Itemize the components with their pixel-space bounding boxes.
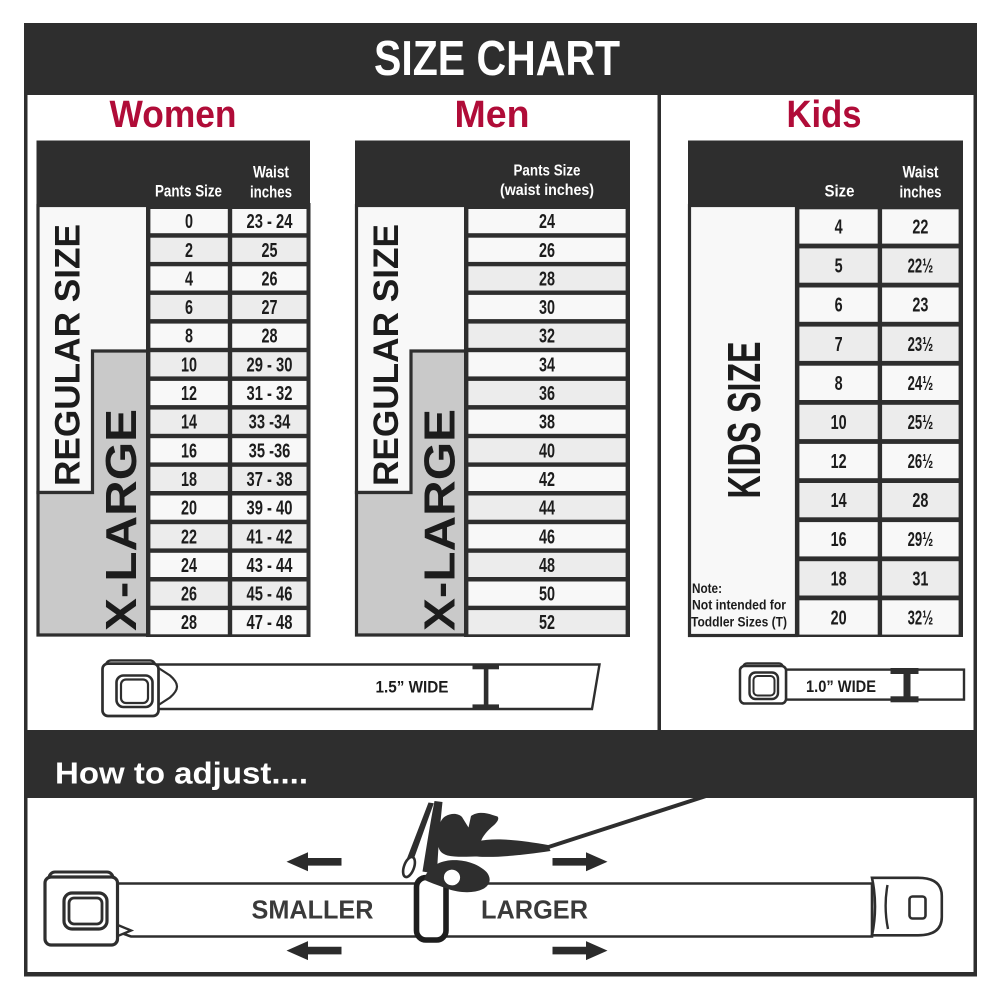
svg-text:REGULAR SIZE: REGULAR SIZE: [49, 224, 88, 486]
svg-text:28: 28: [181, 612, 197, 634]
svg-text:Kids: Kids: [787, 94, 862, 136]
svg-text:1.0” WIDE: 1.0” WIDE: [806, 678, 876, 696]
svg-text:10: 10: [181, 354, 197, 376]
svg-text:28: 28: [539, 268, 555, 290]
svg-text:23 - 24: 23 - 24: [247, 211, 294, 233]
svg-text:Pants Size: Pants Size: [155, 183, 222, 201]
svg-text:8: 8: [835, 373, 843, 395]
svg-text:26: 26: [181, 584, 197, 606]
svg-text:Waist: Waist: [903, 164, 939, 182]
svg-text:25½: 25½: [908, 412, 934, 434]
svg-text:SMALLER: SMALLER: [252, 895, 374, 925]
svg-text:KIDS SIZE: KIDS SIZE: [718, 342, 770, 499]
svg-text:42: 42: [539, 469, 555, 491]
svg-text:1.5” WIDE: 1.5” WIDE: [376, 678, 449, 697]
svg-text:35 -36: 35 -36: [249, 440, 291, 462]
svg-text:48: 48: [539, 555, 555, 577]
svg-text:(waist inches): (waist inches): [500, 182, 594, 199]
svg-text:14: 14: [831, 490, 848, 512]
svg-text:46: 46: [539, 526, 555, 548]
svg-text:25: 25: [262, 240, 278, 262]
svg-text:24: 24: [181, 555, 198, 577]
svg-text:40: 40: [539, 440, 555, 462]
svg-text:X-LARGE: X-LARGE: [416, 409, 465, 631]
svg-text:7: 7: [835, 334, 843, 356]
svg-text:45 - 46: 45 - 46: [247, 584, 293, 606]
svg-text:43 - 44: 43 - 44: [247, 555, 294, 577]
svg-text:22: 22: [181, 526, 197, 548]
svg-text:22: 22: [912, 217, 928, 239]
svg-text:23½: 23½: [908, 334, 934, 356]
svg-text:14: 14: [181, 412, 198, 434]
svg-text:6: 6: [185, 297, 193, 319]
svg-text:5: 5: [835, 256, 843, 278]
svg-text:28: 28: [262, 326, 278, 348]
svg-text:inches: inches: [250, 184, 292, 202]
svg-text:24½: 24½: [908, 373, 934, 395]
svg-text:inches: inches: [900, 184, 942, 202]
svg-text:44: 44: [539, 498, 556, 520]
svg-text:20: 20: [181, 498, 197, 520]
svg-text:0: 0: [185, 211, 193, 233]
svg-text:22½: 22½: [908, 256, 934, 278]
svg-text:16: 16: [831, 529, 847, 551]
svg-text:6: 6: [835, 295, 843, 317]
svg-text:29 - 30: 29 - 30: [247, 354, 293, 376]
svg-text:18: 18: [181, 469, 197, 491]
svg-text:52: 52: [539, 612, 555, 634]
svg-text:Size: Size: [825, 183, 855, 201]
svg-text:12: 12: [831, 451, 847, 473]
svg-text:32½: 32½: [908, 607, 934, 629]
svg-text:41 - 42: 41 - 42: [247, 526, 293, 548]
svg-text:Men: Men: [455, 94, 530, 136]
svg-text:REGULAR SIZE: REGULAR SIZE: [367, 224, 406, 486]
svg-text:10: 10: [831, 412, 847, 434]
svg-text:27: 27: [262, 297, 278, 319]
svg-text:37 - 38: 37 - 38: [247, 469, 293, 491]
svg-text:Women: Women: [110, 94, 237, 136]
svg-text:12: 12: [181, 383, 197, 405]
svg-text:Not intended for: Not intended for: [692, 598, 787, 613]
svg-text:8: 8: [185, 326, 193, 348]
svg-text:LARGER: LARGER: [481, 895, 588, 925]
svg-text:26: 26: [262, 268, 278, 290]
svg-text:26: 26: [539, 240, 555, 262]
svg-text:30: 30: [539, 297, 555, 319]
svg-text:34: 34: [539, 354, 556, 376]
svg-text:47 - 48: 47 - 48: [247, 612, 293, 634]
svg-text:How to adjust....: How to adjust....: [55, 756, 308, 791]
svg-text:36: 36: [539, 383, 555, 405]
svg-text:26½: 26½: [908, 451, 934, 473]
svg-text:Toddler Sizes (T): Toddler Sizes (T): [691, 615, 787, 630]
svg-text:18: 18: [831, 568, 847, 590]
svg-text:23: 23: [912, 295, 928, 317]
svg-text:Pants Size: Pants Size: [514, 163, 581, 180]
svg-text:Note:: Note:: [692, 581, 722, 596]
svg-text:39 - 40: 39 - 40: [247, 498, 293, 520]
svg-text:50: 50: [539, 584, 555, 606]
svg-text:38: 38: [539, 412, 555, 434]
svg-text:31 - 32: 31 - 32: [247, 383, 293, 405]
svg-text:31: 31: [912, 568, 928, 590]
svg-text:SIZE CHART: SIZE CHART: [374, 32, 620, 86]
svg-text:24: 24: [539, 211, 556, 233]
svg-text:4: 4: [185, 268, 194, 290]
svg-text:20: 20: [831, 607, 847, 629]
svg-text:X-LARGE: X-LARGE: [97, 409, 146, 631]
svg-text:Waist: Waist: [253, 164, 289, 182]
svg-text:4: 4: [835, 217, 844, 239]
svg-text:2: 2: [185, 240, 193, 262]
svg-text:29½: 29½: [908, 529, 934, 551]
svg-text:33 -34: 33 -34: [249, 412, 291, 434]
svg-text:16: 16: [181, 440, 197, 462]
svg-text:28: 28: [912, 490, 928, 512]
svg-text:32: 32: [539, 326, 555, 348]
